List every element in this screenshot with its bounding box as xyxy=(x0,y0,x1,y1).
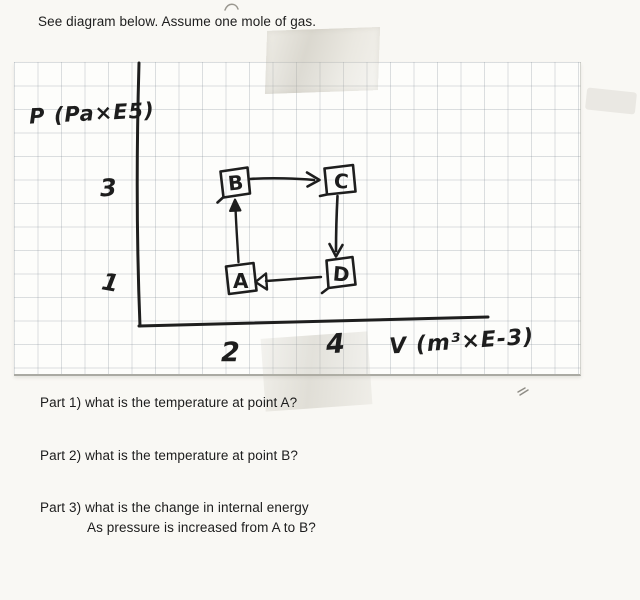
stray-mark-top xyxy=(225,4,238,10)
x-axis-label: V (m³×E-3) xyxy=(388,324,535,359)
y-tick-1: 1 xyxy=(100,268,121,298)
arrowhead-a-to-b xyxy=(230,200,241,212)
arrow-c-to-d xyxy=(330,196,343,257)
arrow-b-to-c xyxy=(250,173,320,187)
scanned-worksheet-page: See diagram below. Assume one mole of ga… xyxy=(0,0,640,600)
state-label-c: C xyxy=(333,169,349,194)
x-tick-2: 2 xyxy=(221,337,240,368)
y-tick-3: 3 xyxy=(99,174,117,203)
x-axis-line xyxy=(139,317,488,326)
state-label-d: D xyxy=(332,261,351,286)
x-tick-4: 4 xyxy=(324,328,346,360)
arrow-d-to-a xyxy=(256,274,322,290)
pv-diagram-svg: B C A D 3 1 2 4 P (Pa×E5) V (m³×E-3) xyxy=(0,0,640,600)
arrow-a-to-b xyxy=(236,207,239,262)
state-label-a: A xyxy=(233,269,249,293)
stray-mark-mid xyxy=(518,388,528,395)
state-label-b: B xyxy=(227,170,245,195)
